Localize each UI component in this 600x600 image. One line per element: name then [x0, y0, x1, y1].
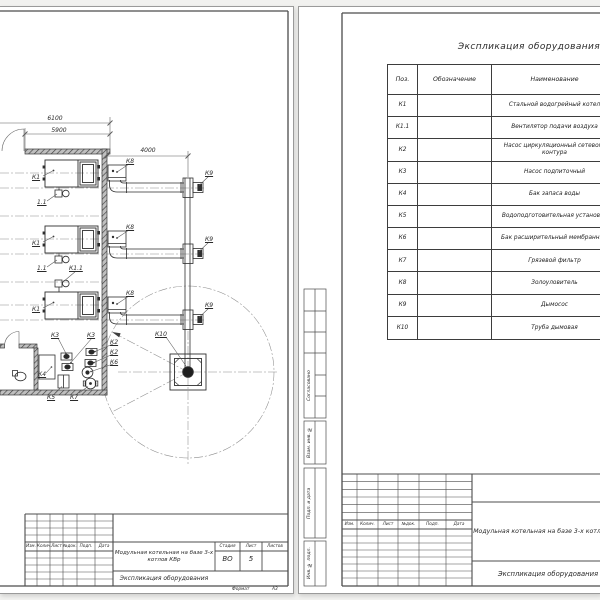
tb-col-kolich: Колич.	[357, 521, 378, 526]
plan-drawing	[0, 7, 294, 593]
label-fan-11: 1.1	[37, 199, 47, 206]
equip-name: Вентилятор подачи воздуха	[492, 117, 600, 139]
label-pump-k3: К3	[87, 332, 95, 339]
equip-name: Золоуловитель	[492, 272, 600, 294]
spec-table-title: Экспликация оборудования	[429, 42, 600, 52]
label-filter-k7: К7	[70, 394, 78, 401]
equip-name: Насос циркуляционный сетевого контура	[492, 139, 600, 161]
equip-designation	[418, 95, 492, 117]
tb-col-ndok: №док.	[398, 521, 419, 526]
tb-stage-value: ВО	[215, 555, 240, 563]
label-smokefan-k9: К9	[205, 302, 213, 309]
tb-sheets-label: Листов	[262, 543, 288, 548]
label-smokefan-k9: К9	[205, 236, 213, 243]
equip-designation	[418, 317, 492, 339]
equip-pos: К3	[388, 162, 418, 184]
label-tank-k4: К4	[38, 371, 46, 378]
tb-col-data: Дата	[95, 543, 113, 548]
stamp-replace-inv: Взам. инв. №	[304, 421, 315, 464]
label-smokefan-k9: К9	[205, 170, 213, 177]
tb-col-podp: Подп.	[419, 521, 446, 526]
col-header-pos: Поз.	[388, 65, 418, 95]
label-chimney-k10: К10	[155, 331, 167, 338]
equip-name: Бак расширительный мембранный	[492, 228, 600, 250]
tb-project-title: Модульная котельная на базе 3-х котлов К…	[473, 503, 600, 561]
label-fan-k11: К1.1	[69, 265, 83, 272]
sheet-specification: Экспликация оборудования Поз. Обозначени…	[298, 6, 600, 594]
guy-arrow	[112, 332, 121, 337]
equipment-table: Поз. Обозначение Наименование К1 Стально…	[387, 64, 600, 340]
label-fan-11: 1.1	[37, 265, 47, 272]
equip-pos: К8	[388, 272, 418, 294]
equip-pos: К5	[388, 206, 418, 228]
equip-designation	[418, 162, 492, 184]
tb-col-izm: Изм.	[342, 521, 357, 526]
tb-col-list: Лист	[50, 543, 63, 548]
equip-name: Стальной водогрейный котел	[492, 95, 600, 117]
dim-inner-width: 5900	[44, 127, 74, 134]
label-boiler-k1: К1	[32, 306, 40, 313]
tb-col-kolich: Колич.	[37, 543, 50, 548]
equip-name: Бак запаса воды	[492, 184, 600, 206]
stamp-sign-date: Подп. и дата	[304, 468, 315, 538]
label-ashtrap-k8: К8	[126, 290, 134, 297]
equip-pos: К10	[388, 317, 418, 339]
label-ashtrap-k8: К8	[126, 158, 134, 165]
pump-room-equipment	[13, 349, 98, 389]
equip-name: Водоподготовительная установка	[492, 206, 600, 228]
leader-dots	[51, 171, 118, 372]
equip-pos: К4	[388, 184, 418, 206]
stamp-agreed: Согласовано	[304, 353, 315, 418]
tb-doc-name: Экспликация оборудования	[473, 561, 600, 586]
label-wtp-k5: К5	[47, 394, 55, 401]
equip-designation	[418, 250, 492, 272]
stamp-inv-orig: Инв. № подл.	[304, 541, 315, 586]
equip-pos: К7	[388, 250, 418, 272]
tb-project-title: Модульная котельная на базе 3-х котлов К…	[114, 544, 214, 570]
col-header-designation: Обозначение	[418, 65, 492, 95]
label-tank-k6: К6	[110, 359, 118, 366]
equip-pos: К2	[388, 139, 418, 161]
flue-details	[112, 170, 202, 323]
equip-name: Насос подпиточный	[492, 162, 600, 184]
equip-designation	[418, 206, 492, 228]
equip-designation	[418, 228, 492, 250]
equip-pos: К9	[388, 295, 418, 317]
equip-name: Грязевой фильтр	[492, 250, 600, 272]
label-pump-k2: К2	[110, 339, 118, 346]
tb-sheet-label: Лист	[240, 543, 262, 548]
equip-pos: К1.1	[388, 117, 418, 139]
equip-pos: К1	[388, 95, 418, 117]
tb-col-podp: Подп.	[77, 543, 95, 548]
equip-name: Дымосос	[492, 295, 600, 317]
tb-col-data: Дата	[446, 521, 472, 526]
label-ashtrap-k8: К8	[126, 224, 134, 231]
label-boiler-k1: К1	[32, 240, 40, 247]
dim-flue-length: 4000	[133, 147, 163, 154]
tb-doc-name: Экспликация оборудования	[114, 571, 214, 585]
equip-designation	[418, 139, 492, 161]
equip-designation	[418, 272, 492, 294]
tb-stage-label: Стадия	[215, 543, 240, 548]
tb-col-izm: Изм.	[25, 543, 37, 548]
doors	[2, 129, 24, 346]
sheet-plan: 6100 5900 4000 К1 К1 К1 1.1 1.1 К1.1 К8 …	[0, 6, 294, 594]
drawing-viewer: 6100 5900 4000 К1 К1 К1 1.1 1.1 К1.1 К8 …	[0, 0, 600, 600]
boilers	[45, 160, 98, 319]
label-pump-k2: К2	[110, 349, 118, 356]
col-header-name: Наименование	[492, 65, 600, 95]
pump-fills	[63, 350, 94, 385]
combustion-fans	[55, 187, 69, 292]
equip-designation	[418, 117, 492, 139]
label-pump-k3: К3	[51, 332, 59, 339]
tb-sheet-value: 5	[240, 555, 262, 563]
equip-designation	[418, 184, 492, 206]
equip-designation	[418, 295, 492, 317]
dim-total-width: 6100	[40, 115, 70, 122]
tb-format-label: Формат	[232, 587, 249, 592]
axis-lines	[0, 173, 278, 465]
equip-name: Труба дымовая	[492, 317, 600, 339]
equip-pos: К6	[388, 228, 418, 250]
label-boiler-k1: К1	[32, 174, 40, 181]
tb-col-list: Лист	[378, 521, 398, 526]
tb-col-ndok: №док.	[63, 543, 77, 548]
tb-format-value: А3	[272, 587, 278, 592]
